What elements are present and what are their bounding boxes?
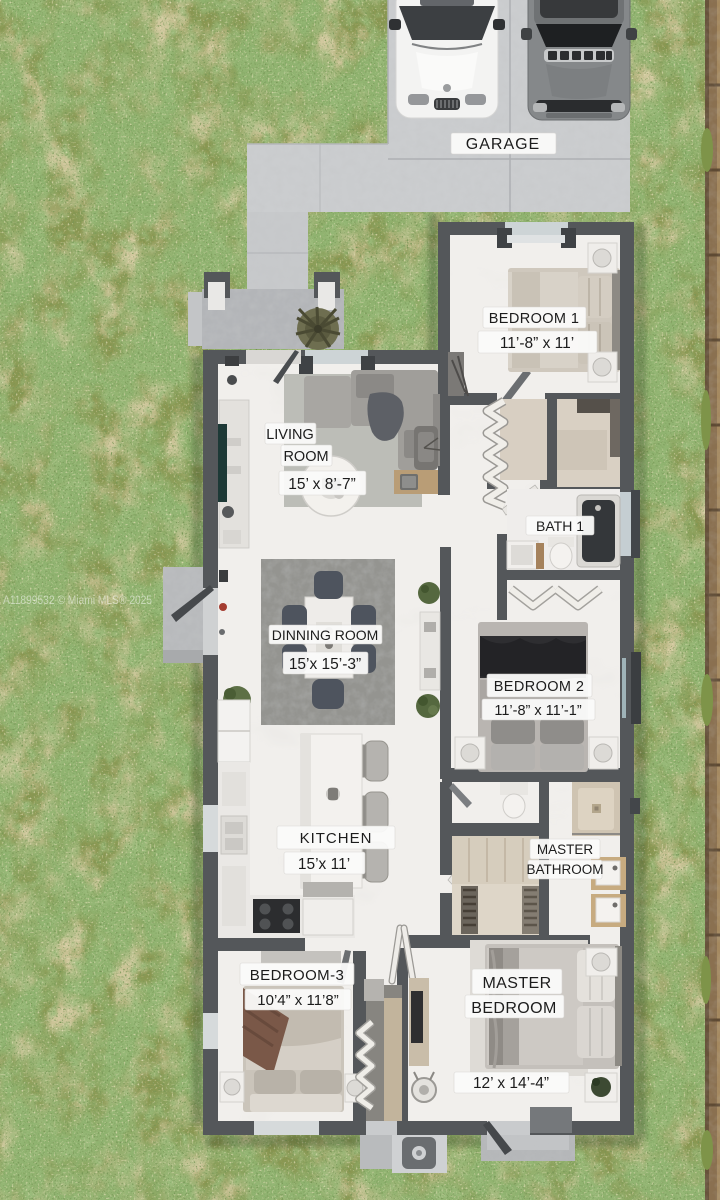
svg-text:15’ x 8’-7”: 15’ x 8’-7” — [288, 476, 355, 493]
svg-text:12’ x 14’-4”: 12’ x 14’-4” — [473, 1075, 549, 1092]
svg-text:DINNING ROOM: DINNING ROOM — [272, 627, 379, 643]
svg-text:GARAGE: GARAGE — [466, 136, 540, 153]
svg-text:BEDROOM: BEDROOM — [471, 1000, 556, 1017]
svg-text:11’-8” x 11’-1”: 11’-8” x 11’-1” — [494, 703, 581, 719]
svg-text:A11899532 © Miami MLS® 2025: A11899532 © Miami MLS® 2025 — [3, 595, 152, 607]
svg-text:MASTER: MASTER — [482, 975, 551, 992]
svg-text:10’4” x 11’8”: 10’4” x 11’8” — [257, 992, 338, 1009]
svg-text:BATHROOM: BATHROOM — [527, 862, 604, 877]
svg-text:BATH 1: BATH 1 — [536, 518, 584, 534]
svg-text:LIVING: LIVING — [266, 427, 314, 443]
svg-text:BEDROOM 1: BEDROOM 1 — [489, 311, 580, 327]
svg-text:15’x 15’-3”: 15’x 15’-3” — [289, 656, 361, 673]
svg-text:KITCHEN: KITCHEN — [300, 830, 373, 847]
svg-text:11’-8” x 11’: 11’-8” x 11’ — [500, 335, 574, 352]
svg-text:ROOM: ROOM — [283, 449, 328, 465]
svg-text:BEDROOM-3: BEDROOM-3 — [250, 967, 344, 984]
svg-text:15’x 11’: 15’x 11’ — [298, 856, 350, 873]
svg-text:BEDROOM 2: BEDROOM 2 — [494, 679, 585, 695]
svg-text:MASTER: MASTER — [537, 842, 594, 857]
